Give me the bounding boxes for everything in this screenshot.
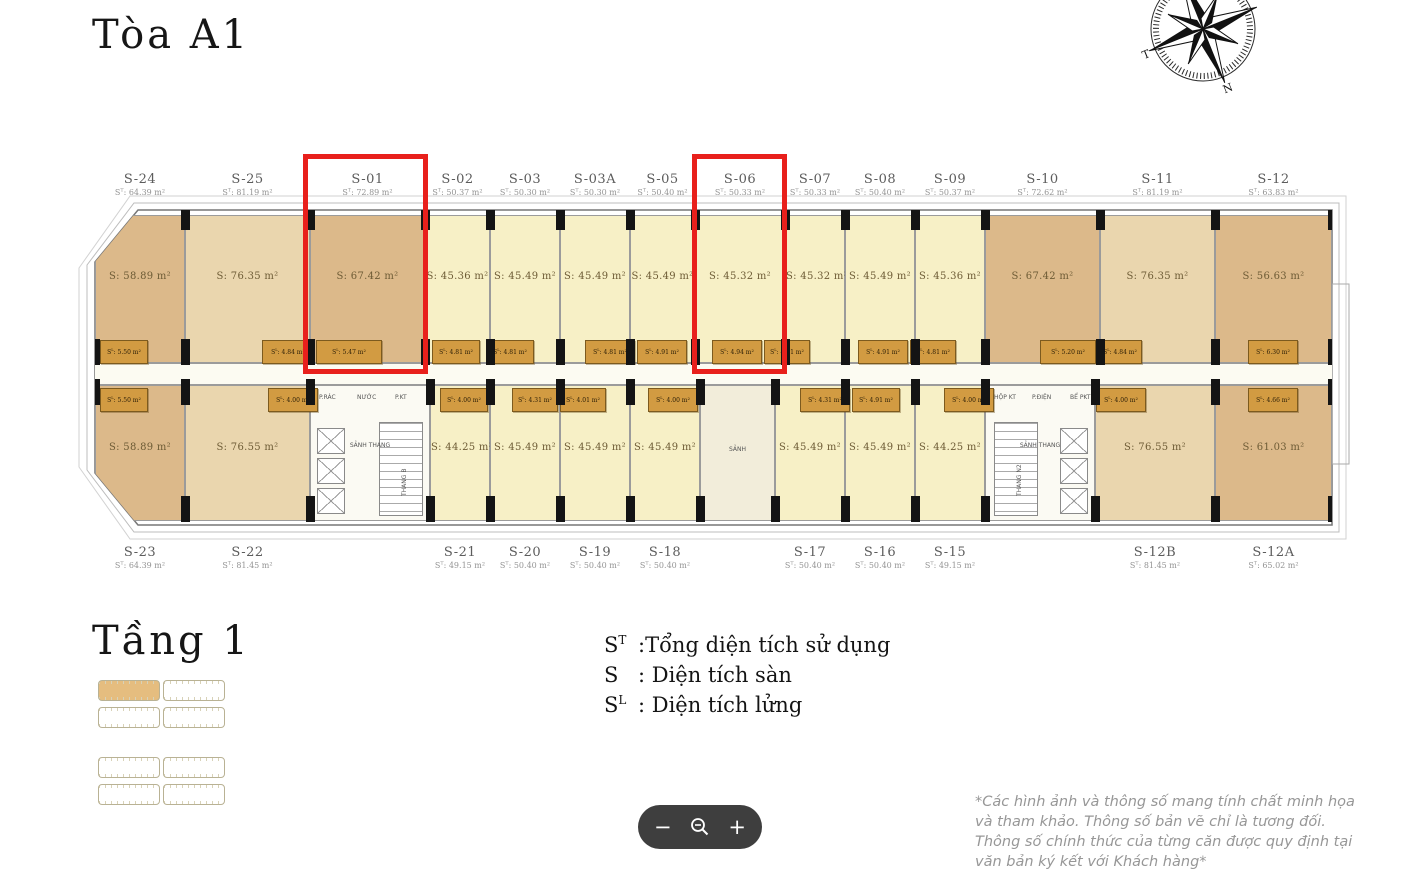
minimap-building-bar[interactable] [163, 707, 225, 728]
minimap-building-bar[interactable] [98, 707, 160, 728]
zoom-in-button[interactable]: + [728, 817, 746, 838]
site-minimap [0, 0, 1408, 861]
zoom-out-button[interactable]: − [654, 817, 672, 838]
magnifier-icon[interactable] [689, 816, 711, 838]
minimap-building-bar[interactable] [163, 680, 225, 701]
zoom-toolbar: − + [638, 805, 762, 849]
minimap-building-bar[interactable] [98, 680, 160, 701]
minimap-building-bar[interactable] [163, 757, 225, 778]
minimap-building-bar[interactable] [163, 784, 225, 805]
disclaimer-text: *Các hình ảnh và thông số mang tính chất… [975, 792, 1375, 872]
minimap-building-bar[interactable] [98, 784, 160, 805]
minimap-building-bar[interactable] [98, 757, 160, 778]
